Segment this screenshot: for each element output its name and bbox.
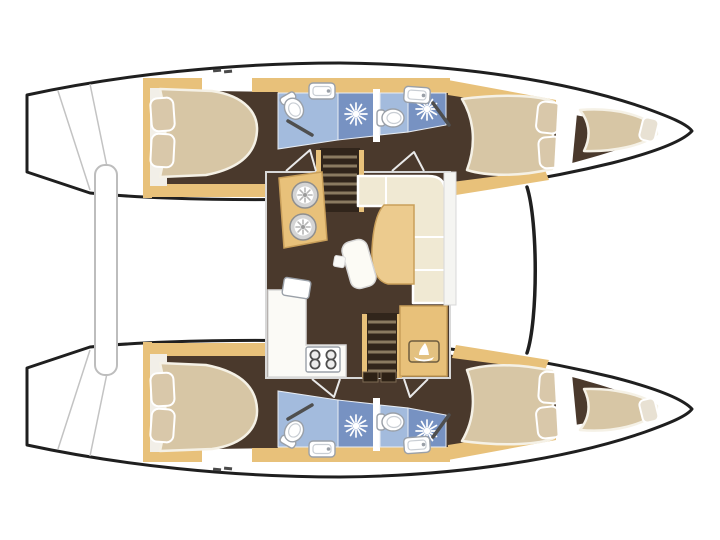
four-burner-stove [306, 347, 340, 372]
sink-drain-icon [290, 214, 316, 240]
nav-cabinet [400, 306, 447, 376]
sink-drain-icon [292, 182, 318, 208]
companionway-door [381, 372, 396, 382]
salon-side-wall [444, 172, 456, 305]
stair-rail [362, 314, 367, 378]
washbasin-icon [309, 83, 335, 99]
aft-cabin-wall-top [252, 78, 281, 92]
stove-burner [326, 359, 335, 368]
floor-plan-stage [0, 0, 720, 540]
stove-burner [310, 359, 319, 368]
washbasin-icon [403, 86, 430, 104]
stove-burner [326, 350, 335, 359]
catamaran-floor-plan [0, 0, 720, 540]
coachroof-edge [527, 187, 535, 353]
pillow [150, 372, 175, 406]
companionway-door [363, 372, 378, 382]
galley-sink-unit [279, 172, 327, 248]
toilet-icon [377, 413, 404, 431]
pillow [150, 97, 175, 132]
pillow [150, 133, 175, 167]
salon-table [372, 205, 414, 284]
stairs-to-starboard-hull [362, 313, 402, 378]
washbasin-icon [309, 441, 335, 457]
washbasin-icon [403, 436, 430, 454]
stove-burner [310, 350, 319, 359]
aft-cabin-wall-top [252, 448, 281, 462]
pillow [150, 408, 175, 443]
footstool [333, 255, 346, 268]
cockpit-bench [95, 165, 117, 375]
galley-appliance [282, 277, 311, 299]
toilet-icon [377, 109, 404, 127]
